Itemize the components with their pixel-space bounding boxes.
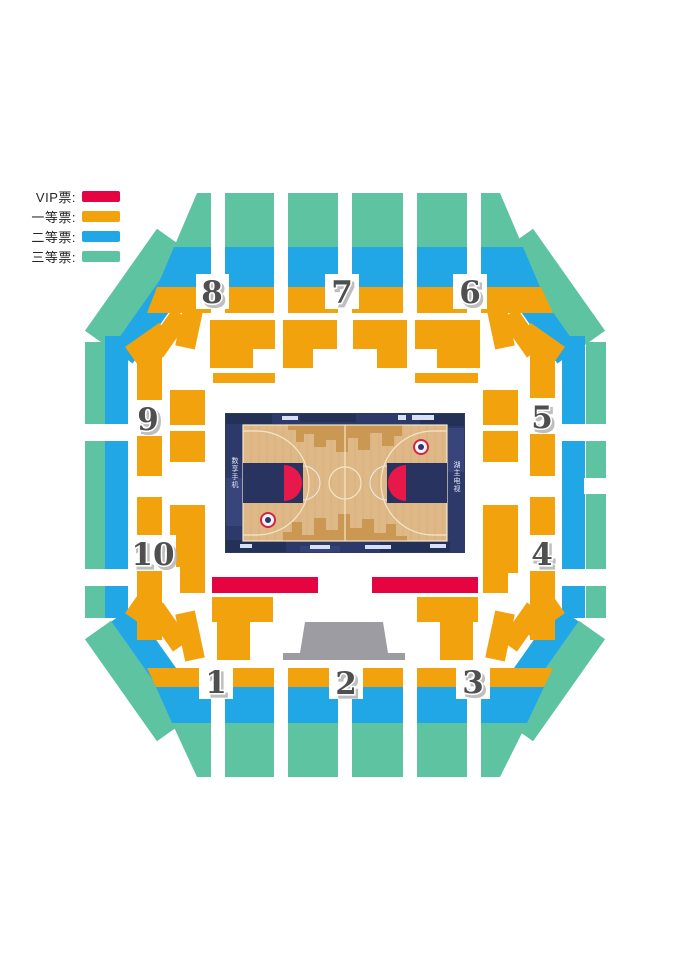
legend-swatch-tier3 bbox=[82, 251, 120, 262]
legend-label-tier2: 二等票: bbox=[18, 227, 76, 246]
svg-text:8: 8 bbox=[201, 275, 223, 311]
legend-swatch-tier2 bbox=[82, 231, 120, 242]
svg-text:10: 10 bbox=[131, 537, 174, 573]
ticket-legend: VIP票: 一等票: 二等票: 三等票: bbox=[18, 186, 120, 266]
section-number-5[interactable]: 5 5 bbox=[531, 400, 555, 439]
section-number-9[interactable]: 9 9 bbox=[137, 402, 161, 441]
court-logo bbox=[261, 513, 275, 527]
court-logo bbox=[414, 440, 428, 454]
court-apron-text-left: 数享手机 bbox=[227, 457, 238, 489]
basketball-court bbox=[225, 413, 465, 553]
seat-map-page: VIP票: 一等票: 二等票: 三等票: bbox=[0, 0, 693, 979]
legend-row-tier1: 一等票: bbox=[18, 206, 120, 226]
section-number-2[interactable]: 2 2 bbox=[335, 666, 359, 705]
arena-seat-map: 1 1 2 2 3 3 4 4 5 5 6 6 7 7 8 8 bbox=[0, 0, 693, 979]
svg-text:1: 1 bbox=[205, 665, 227, 701]
legend-swatch-vip bbox=[82, 191, 120, 202]
section-number-3[interactable]: 3 3 bbox=[462, 665, 486, 704]
stage-platform bbox=[283, 622, 405, 660]
svg-text:3: 3 bbox=[462, 665, 484, 701]
legend-row-vip: VIP票: bbox=[18, 186, 120, 206]
legend-row-tier3: 三等票: bbox=[18, 246, 120, 266]
svg-text:6: 6 bbox=[459, 275, 481, 311]
svg-text:5: 5 bbox=[531, 400, 553, 436]
svg-text:2: 2 bbox=[335, 666, 357, 702]
section-number-1[interactable]: 1 1 bbox=[205, 665, 229, 704]
section-number-8[interactable]: 8 8 bbox=[201, 275, 225, 314]
legend-swatch-tier1 bbox=[82, 211, 120, 222]
legend-label-tier3: 三等票: bbox=[18, 247, 76, 266]
section-number-4[interactable]: 4 4 bbox=[531, 537, 555, 576]
svg-text:4: 4 bbox=[531, 537, 553, 573]
section-number-7[interactable]: 7 7 bbox=[331, 275, 355, 314]
legend-label-vip: VIP票: bbox=[18, 187, 76, 206]
vip-strips[interactable] bbox=[212, 577, 478, 593]
svg-text:9: 9 bbox=[137, 402, 159, 438]
court-apron-text-right: 湖主电视 bbox=[449, 461, 460, 493]
section-number-6[interactable]: 6 6 bbox=[459, 275, 483, 314]
section-number-10[interactable]: 10 10 bbox=[131, 537, 177, 576]
svg-text:7: 7 bbox=[331, 275, 353, 311]
legend-row-tier2: 二等票: bbox=[18, 226, 120, 246]
legend-label-tier1: 一等票: bbox=[18, 207, 76, 226]
